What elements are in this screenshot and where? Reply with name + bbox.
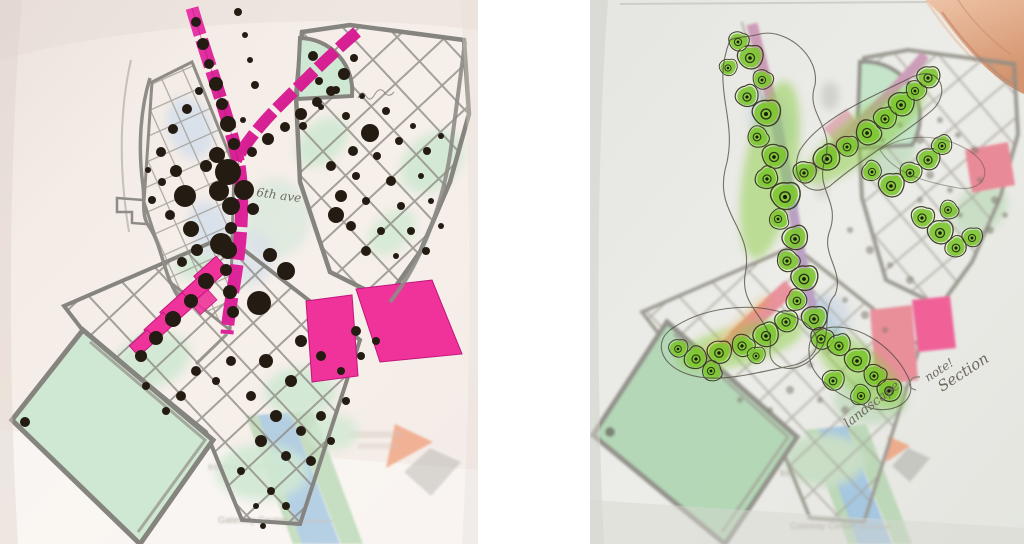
pink-superblock-a: [306, 295, 358, 382]
smudge: [821, 82, 839, 110]
tree-dot: [605, 427, 615, 437]
tree-dot: [20, 417, 30, 427]
bright-pink-superblock: [912, 296, 956, 352]
left-sketch-photo: International Plaza Gateway Center: [0, 0, 478, 544]
two-sketch-photos-collage: International Plaza Gateway Center: [0, 0, 1024, 544]
right-sketch-photo: International Plaza Gateway Center: [590, 0, 1024, 544]
